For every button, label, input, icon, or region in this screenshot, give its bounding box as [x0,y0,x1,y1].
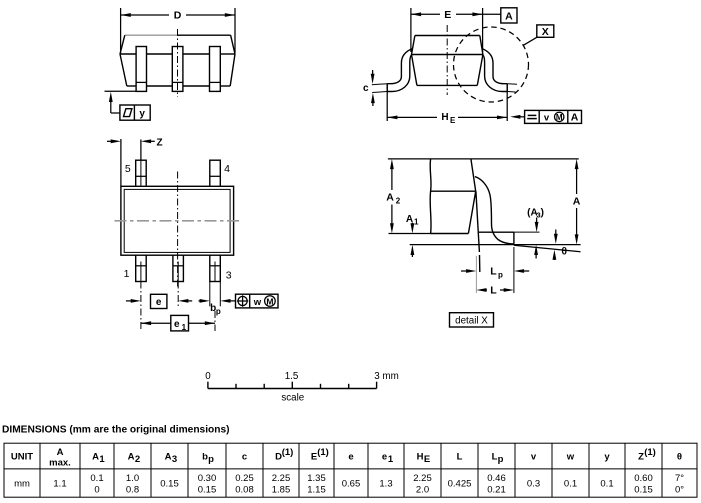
svg-text:2.25: 2.25 [272,473,291,484]
svg-text:e: e [348,452,353,463]
svg-text:1: 1 [388,454,394,465]
svg-text:p: p [216,307,221,316]
svg-text:e: e [174,319,180,330]
svg-text:7°: 7° [675,473,684,484]
svg-text:A: A [92,452,99,463]
svg-text:L: L [490,285,497,297]
svg-text:1: 1 [414,217,419,226]
svg-text:p: p [498,454,504,465]
svg-text:0.46: 0.46 [487,473,506,484]
svg-text:1.85: 1.85 [272,485,291,496]
svg-text:D: D [174,10,182,22]
svg-text:0.3: 0.3 [527,479,540,490]
svg-text:0.30: 0.30 [198,473,217,484]
svg-text:p: p [208,454,214,465]
svg-text:c: c [363,83,369,94]
svg-text:v: v [531,452,537,463]
svg-text:v: v [544,112,550,123]
svg-text:e: e [382,452,387,463]
svg-text:0.425: 0.425 [448,479,472,490]
svg-text:0.1: 0.1 [90,473,103,484]
svg-text:0.15: 0.15 [160,479,179,490]
svg-text:Z: Z [157,137,163,148]
svg-text:0.15: 0.15 [634,485,653,496]
svg-text:E: E [450,116,456,125]
svg-text:1.35: 1.35 [307,473,326,484]
svg-text:0.08: 0.08 [235,485,254,496]
svg-text:e: e [156,297,162,308]
svg-text:3 mm: 3 mm [374,371,399,382]
svg-text:1.0: 1.0 [126,473,139,484]
svg-text:M: M [556,113,563,122]
svg-text:max.: max. [49,458,71,469]
svg-text:0.8: 0.8 [126,485,139,496]
svg-text:M: M [266,296,273,306]
svg-text:H: H [417,452,424,463]
svg-text:1: 1 [124,268,130,280]
svg-text:A: A [57,447,64,458]
svg-text:2.25: 2.25 [413,473,432,484]
svg-text:1.5: 1.5 [285,371,299,382]
svg-text:Z: Z [638,452,644,463]
svg-text:5: 5 [125,163,131,175]
svg-text:0.1: 0.1 [564,479,577,490]
svg-text:2: 2 [135,454,140,465]
svg-text:1.1: 1.1 [53,479,66,490]
svg-text:0.65: 0.65 [342,479,361,490]
svg-text:4: 4 [224,163,230,175]
svg-text:0°: 0° [675,485,684,496]
svg-text:mm: mm [14,479,30,490]
svg-text:E: E [444,9,451,21]
svg-text:w: w [566,452,575,463]
svg-text:c: c [242,452,247,463]
svg-text:E: E [424,454,430,465]
svg-text:θ: θ [677,452,682,463]
svg-text:0.60: 0.60 [634,473,653,484]
svg-text:detail X: detail X [455,316,488,327]
svg-text:w: w [253,297,262,308]
svg-text:1: 1 [99,454,105,465]
svg-text:1: 1 [182,323,187,332]
svg-text:0.1: 0.1 [600,479,613,490]
svg-text:y: y [139,108,145,119]
svg-text:θ: θ [561,246,567,258]
svg-text:scale: scale [281,393,304,404]
svg-text:(1): (1) [644,447,656,458]
svg-text:0.21: 0.21 [487,485,506,496]
svg-text:A: A [165,452,172,463]
svg-text:A: A [573,196,581,208]
svg-text:A: A [128,452,135,463]
svg-text:(1): (1) [317,447,329,458]
svg-text:A: A [505,10,513,22]
svg-text:UNIT: UNIT [11,452,33,463]
svg-text:0: 0 [205,371,211,382]
svg-text:p: p [498,271,503,280]
svg-text:A: A [386,192,394,204]
svg-text:3: 3 [172,454,177,465]
svg-text:0: 0 [94,485,99,496]
svg-text:y: y [604,452,610,463]
svg-text:3: 3 [226,270,232,282]
svg-text:X: X [542,26,549,38]
svg-text:0.15: 0.15 [198,485,217,496]
svg-text:1.3: 1.3 [379,479,392,490]
svg-text:(1): (1) [282,447,294,458]
svg-text:H: H [441,112,448,123]
svg-text:DIMENSIONS (mm are the origina: DIMENSIONS (mm are the original dimensio… [2,425,230,436]
svg-text:L: L [457,452,463,463]
svg-text:L: L [490,266,497,278]
svg-text:A: A [571,112,579,124]
svg-text:0.25: 0.25 [235,473,254,484]
svg-text:1.15: 1.15 [307,485,326,496]
svg-text:2.0: 2.0 [416,485,429,496]
svg-text:): ) [541,207,544,218]
svg-text:2: 2 [396,196,401,205]
